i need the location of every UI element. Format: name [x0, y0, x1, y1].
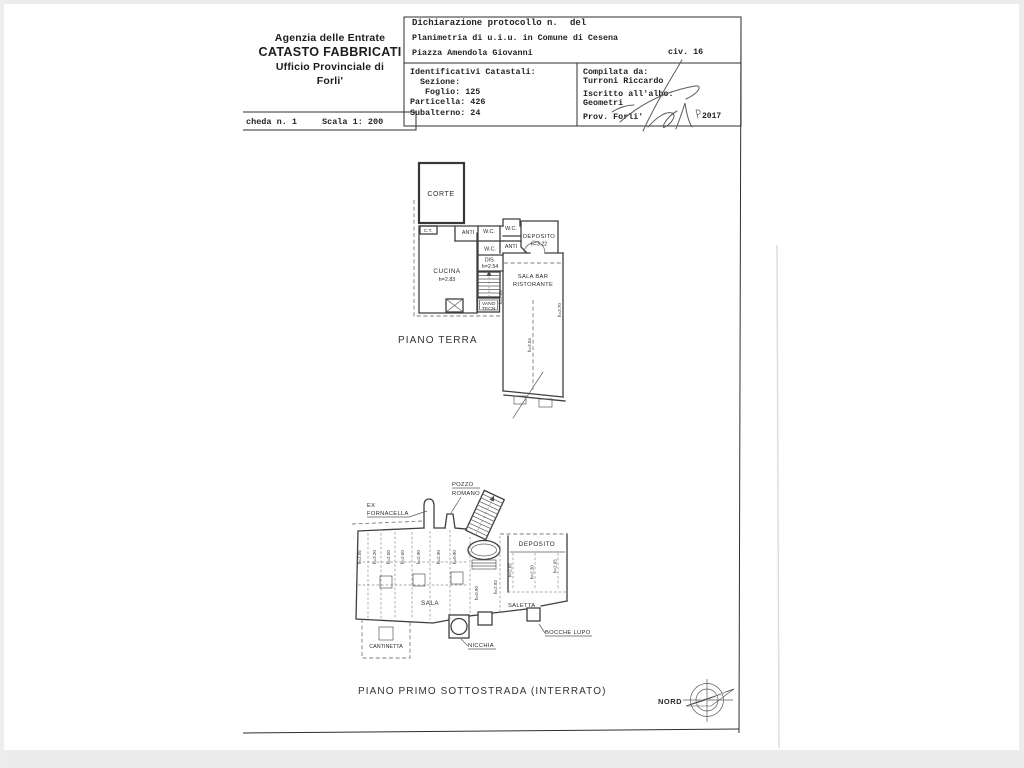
- identificativi-box: Identificativi Catastali: Sezione: Fogli…: [404, 63, 741, 126]
- label-nicchia: NICCHIA: [468, 643, 494, 649]
- compilata-albo-value: Geometri: [583, 98, 623, 108]
- header-agency-block: Agenzia delle Entrate CATASTO FABBRICATI…: [259, 32, 402, 87]
- room-label-corte: CORTE: [427, 191, 454, 198]
- height-corridor: h=3.04: [527, 338, 532, 352]
- label-pozzo-1: POZZO: [452, 482, 474, 488]
- room-label-cantinetta: CANTINETTA: [369, 644, 403, 650]
- room-label-anti-top: ANTI: [462, 230, 474, 236]
- room-label-deposito-pt: DEPOSITO: [523, 234, 555, 240]
- height-mid-1: h=0.90: [474, 586, 479, 600]
- callout-bocche-lupo: BOCCHE LUPO: [539, 624, 592, 636]
- stairs-ground-floor: [478, 271, 500, 298]
- label-bocche-lupo: BOCCHE LUPO: [545, 630, 591, 636]
- height-sala-2: h=3.20: [372, 550, 377, 564]
- piano-terra-plan: CORTE: [398, 163, 565, 418]
- agency-line4: Forli': [317, 75, 343, 87]
- scanned-cadastral-sheet: Agenzia delle Entrate CATASTO FABBRICATI…: [0, 0, 1024, 768]
- room-label-dis: DIS.: [485, 258, 495, 264]
- height-left-wall: h=2.04: [498, 290, 503, 304]
- height-deposito-2: h=2.30: [530, 565, 535, 579]
- corridor-walls: [503, 241, 565, 418]
- agency-line3: Ufficio Provinciale di: [276, 61, 384, 73]
- height-sala-4: h=2.50: [400, 550, 405, 564]
- cantinetta-room: CANTINETTA: [362, 619, 410, 658]
- height-sala-3: h=2.50: [386, 550, 391, 564]
- room-label-salabar-2: RISTORANTE: [513, 282, 553, 288]
- declaration-planimetria: Planimetria di u.i.u. in Comune di Cesen…: [412, 33, 618, 43]
- compilata-box: Compilata da: Turroni Riccardo Iscritto …: [583, 67, 721, 122]
- height-deposito-3: h=2.65: [553, 559, 558, 573]
- identificativi-foglio: Foglio: 125: [425, 87, 480, 97]
- height-sala-5: h=2.90: [416, 550, 421, 564]
- identificativi-title: Identificativi Catastali:: [410, 67, 536, 77]
- deposito-room: DEPOSITO h=2.65 h=2.30 h=2.65: [508, 541, 568, 592]
- identificativi-particella: Particella: 426: [410, 97, 485, 107]
- interrato-dashed-boundary: [352, 521, 567, 534]
- height-mid-2: h=2.92: [493, 580, 498, 594]
- label-ex-2: FORNACELLA: [367, 511, 409, 517]
- height-dis: h=2.54: [482, 264, 499, 270]
- height-sala-7: h=0.90: [452, 550, 457, 564]
- compilata-year: 2017: [702, 112, 721, 121]
- scheda-number: cheda n. 1: [246, 117, 297, 127]
- label-pozzo-2: ROMANO: [452, 491, 480, 497]
- piano-interrato-plan: DEPOSITO h=2.65 h=2.30 h=2.65 SALA SALET…: [352, 482, 607, 697]
- height-deposito-pt: h=3.22: [531, 242, 548, 248]
- scheda-box: cheda n. 1 Scala 1: 200: [243, 112, 416, 130]
- declaration-del: del: [570, 18, 587, 28]
- room-label-cucina: CUCINA: [433, 268, 460, 275]
- room-label-salabar-1: SALA BAR: [518, 274, 548, 280]
- vano-tecnico-box: VANO TECN: [478, 298, 500, 312]
- room-label-deposito-int: DEPOSITO: [519, 541, 555, 548]
- callout-nicchia: NICCHIA: [461, 639, 496, 649]
- room-label-wc-mid: W.C.: [484, 247, 496, 253]
- compass-label: NORD: [658, 697, 682, 706]
- compilata-name: Turroni Riccardo: [583, 76, 663, 86]
- compilata-prov: Prov. Forli': [583, 112, 643, 122]
- label-ex-1: EX: [367, 503, 375, 509]
- stairs-basement: [466, 490, 505, 539]
- height-cucina: h=2.83: [439, 277, 456, 283]
- height-deposito-1: h=2.65: [508, 563, 513, 577]
- piano-interrato-title: PIANO PRIMO SOTTOSTRADA (INTERRATO): [358, 686, 607, 697]
- agency-line1: Agenzia delle Entrate: [275, 32, 385, 44]
- identificativi-sezione: Sezione:: [420, 77, 460, 87]
- declaration-protocol: Dichiarazione protocollo n.: [412, 18, 558, 28]
- north-compass-icon: NORD: [658, 679, 734, 722]
- declaration-address: Piazza Amendola Giovanni: [412, 48, 533, 58]
- scan-edges: [0, 0, 1024, 768]
- room-label-wc-upper: W.C.: [505, 226, 517, 232]
- room-label-ct: C.T.: [424, 228, 433, 234]
- fireplace-symbol: [446, 299, 463, 312]
- height-sala-1: h=2.05: [357, 550, 362, 564]
- callout-ex-fornacella: EX FORNACELLA: [367, 503, 427, 517]
- piano-terra-title: PIANO TERRA: [398, 335, 478, 346]
- room-label-wc-top: W.C.: [483, 229, 495, 235]
- room-label-vano: VANO: [482, 301, 496, 307]
- room-label-sala: SALA: [421, 600, 439, 607]
- document-canvas: Agenzia delle Entrate CATASTO FABBRICATI…: [0, 0, 1024, 768]
- pozzo-romano-well: [468, 541, 500, 570]
- scheda-scale: Scala 1: 200: [322, 117, 383, 127]
- identificativi-subalterno: Subalterno: 24: [410, 108, 480, 118]
- height-sala-6: h=2.90: [436, 550, 441, 564]
- room-label-anti-mid: ANTI: [505, 244, 517, 250]
- room-label-tecn: TECN: [482, 306, 496, 312]
- declaration-box: Dichiarazione protocollo n. del Planimet…: [404, 17, 741, 63]
- declaration-civ: civ. 16: [668, 47, 703, 57]
- agency-line2: CATASTO FABBRICATI: [259, 45, 402, 59]
- height-right-wall: h=3.70: [557, 303, 562, 317]
